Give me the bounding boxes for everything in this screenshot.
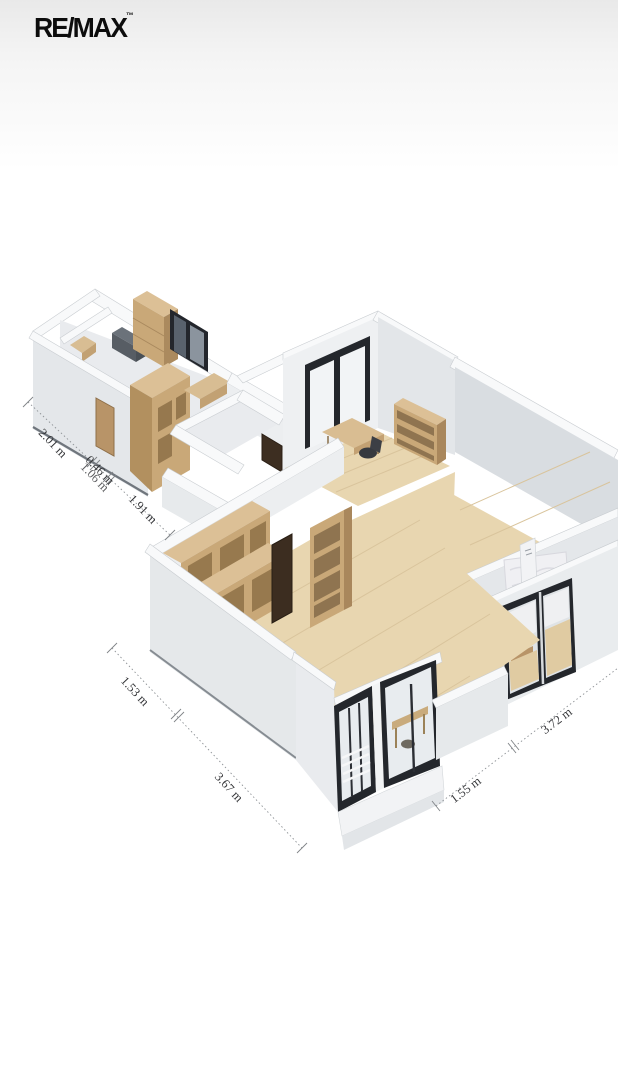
window (170, 309, 208, 372)
dimension-label: 1.91 m (126, 492, 160, 527)
dimension-label: 1.55 m (448, 774, 484, 806)
screenshot-root: RE/MAX™ (0, 0, 618, 1080)
window (334, 686, 376, 812)
wing-upper-left (29, 289, 232, 497)
window (380, 660, 440, 788)
dimension-label: 1.53 m (118, 674, 152, 709)
bay-window (292, 652, 508, 850)
door (272, 534, 292, 623)
floor-plan-3d-view[interactable]: ice (0, 0, 618, 1080)
wood-door (96, 398, 114, 456)
dimension-label: 3.72 m (539, 705, 575, 737)
dimension-label: 3.67 m (212, 770, 246, 805)
